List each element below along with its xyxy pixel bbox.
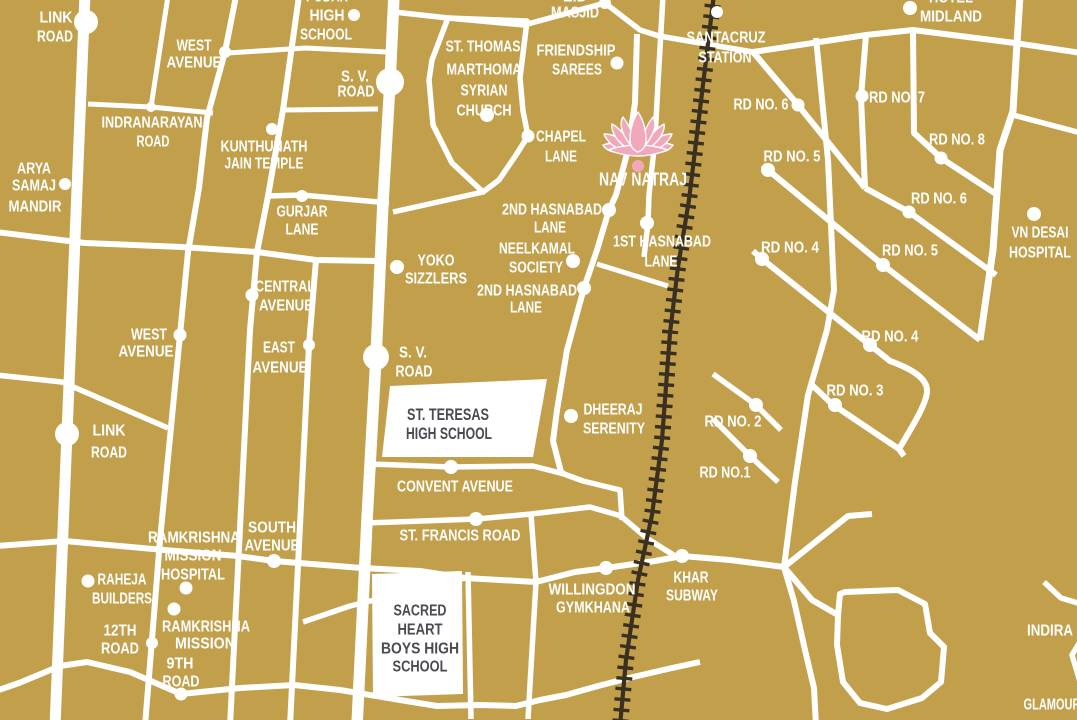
svg-text:BUILDERS: BUILDERS: [92, 590, 152, 607]
svg-text:AVENUE: AVENUE: [167, 54, 222, 71]
svg-text:2ND HASNABAD: 2ND HASNABAD: [477, 282, 577, 299]
svg-text:HIGH SCHOOL: HIGH SCHOOL: [406, 424, 492, 443]
svg-text:YOKO: YOKO: [418, 252, 455, 269]
svg-text:ST. TERESAS: ST. TERESAS: [407, 405, 489, 424]
svg-text:LANE: LANE: [545, 148, 577, 165]
svg-text:CHAPEL: CHAPEL: [536, 128, 586, 145]
svg-text:RD NO. 7: RD NO. 7: [869, 89, 925, 106]
svg-text:2ND HASNABAD: 2ND HASNABAD: [502, 201, 602, 218]
svg-text:SACRED: SACRED: [394, 603, 447, 620]
svg-text:RD NO. 5: RD NO. 5: [882, 242, 938, 259]
svg-text:RAMKRISHNA: RAMKRISHNA: [162, 618, 250, 635]
svg-text:HOSPITAL: HOSPITAL: [161, 566, 225, 583]
svg-text:RD NO. 4: RD NO. 4: [862, 328, 919, 345]
svg-text:AVENUE: AVENUE: [259, 297, 313, 314]
svg-text:AVENUE: AVENUE: [253, 359, 308, 376]
svg-text:JAIN TEMPLE: JAIN TEMPLE: [225, 155, 304, 172]
svg-text:CONVENT AVENUE: CONVENT AVENUE: [397, 478, 513, 495]
svg-text:INDIRA: INDIRA: [1027, 622, 1073, 639]
svg-text:MASJID: MASJID: [551, 4, 599, 21]
svg-text:WILLINGDON: WILLINGDON: [549, 581, 636, 598]
svg-text:LANE: LANE: [534, 219, 566, 236]
svg-text:SAREES: SAREES: [552, 61, 602, 78]
svg-text:KUNTHUNATH: KUNTHUNATH: [221, 138, 308, 155]
svg-text:SCHOOL: SCHOOL: [393, 659, 448, 676]
svg-text:NAV NATRAJ: NAV NATRAJ: [599, 169, 687, 190]
svg-text:9TH: 9TH: [167, 655, 194, 672]
svg-text:HOTEL: HOTEL: [929, 0, 973, 6]
svg-text:AVENUE: AVENUE: [245, 537, 300, 554]
svg-text:HIGH: HIGH: [310, 7, 345, 24]
svg-text:ROAD: ROAD: [396, 363, 433, 380]
svg-text:ROAD: ROAD: [338, 83, 375, 100]
svg-text:ST. FRANCIS ROAD: ST. FRANCIS ROAD: [400, 527, 521, 544]
svg-text:SUBWAY: SUBWAY: [666, 587, 719, 604]
svg-text:RD NO. 5: RD NO. 5: [764, 148, 821, 165]
svg-text:RD NO. 2: RD NO. 2: [705, 413, 762, 430]
svg-text:MIDLAND: MIDLAND: [920, 8, 982, 25]
svg-text:DHEERAJ: DHEERAJ: [584, 401, 643, 418]
svg-text:CENTRAL: CENTRAL: [255, 278, 315, 295]
svg-text:BOYS HIGH: BOYS HIGH: [381, 641, 459, 658]
svg-text:HOSPITAL: HOSPITAL: [1009, 244, 1071, 261]
svg-text:ROAD: ROAD: [163, 673, 200, 690]
svg-text:HEART: HEART: [398, 622, 443, 639]
svg-text:CHURCH: CHURCH: [457, 102, 512, 119]
svg-text:SYRIAN: SYRIAN: [461, 82, 508, 99]
svg-text:ROAD: ROAD: [91, 444, 127, 461]
svg-text:KHAR: KHAR: [674, 569, 709, 586]
svg-text:MANDIR: MANDIR: [9, 198, 62, 215]
svg-text:PODAR: PODAR: [306, 0, 348, 5]
svg-text:FRIENDSHIP: FRIENDSHIP: [537, 42, 616, 59]
svg-text:LANE: LANE: [286, 221, 319, 238]
svg-text:SOCIETY: SOCIETY: [509, 259, 564, 276]
svg-text:SANTACRUZ: SANTACRUZ: [687, 29, 766, 46]
svg-text:MARTHOMA: MARTHOMA: [447, 61, 522, 78]
svg-text:ROAD: ROAD: [101, 640, 139, 657]
svg-text:ROAD: ROAD: [37, 28, 73, 45]
svg-text:RD NO. 6: RD NO. 6: [734, 96, 789, 113]
svg-text:SERENITY: SERENITY: [583, 420, 646, 437]
svg-text:INDRANARAYAN: INDRANARAYAN: [102, 114, 203, 131]
svg-text:ARYA: ARYA: [17, 160, 51, 177]
svg-text:RD NO. 6: RD NO. 6: [911, 190, 967, 207]
svg-text:LANE: LANE: [645, 253, 678, 270]
svg-text:RD NO. 8: RD NO. 8: [929, 131, 985, 148]
svg-text:STATION: STATION: [699, 49, 752, 66]
svg-text:MISSION: MISSION: [175, 635, 235, 652]
svg-text:NEELKAMAL: NEELKAMAL: [499, 240, 575, 257]
svg-text:12TH: 12TH: [104, 622, 137, 639]
svg-text:MISSION: MISSION: [165, 547, 222, 564]
svg-text:GURJAR: GURJAR: [277, 203, 328, 220]
svg-text:SCHOOL: SCHOOL: [300, 26, 352, 43]
svg-text:VN DESAI: VN DESAI: [1012, 224, 1069, 241]
svg-text:LANE: LANE: [510, 299, 542, 316]
svg-text:GYMKHANA: GYMKHANA: [556, 599, 630, 616]
svg-text:SOUTH: SOUTH: [248, 519, 296, 536]
svg-text:WEST: WEST: [131, 326, 167, 343]
svg-text:LINK: LINK: [40, 9, 74, 26]
svg-text:S. V.: S. V.: [399, 344, 427, 361]
svg-text:EAST: EAST: [263, 339, 295, 356]
svg-text:SAMAJ: SAMAJ: [12, 177, 56, 194]
svg-text:LINK: LINK: [93, 422, 127, 439]
svg-text:WEST: WEST: [177, 37, 212, 54]
svg-text:SIZZLERS: SIZZLERS: [405, 270, 467, 287]
svg-text:GLAMOUR: GLAMOUR: [1024, 696, 1077, 713]
svg-text:RAMKRISHNA: RAMKRISHNA: [148, 529, 240, 546]
svg-text:RAHEJA: RAHEJA: [98, 571, 147, 588]
svg-text:ROAD: ROAD: [137, 133, 170, 150]
svg-text:ST. THOMAS: ST. THOMAS: [446, 38, 521, 55]
svg-text:RD NO. 3: RD NO. 3: [827, 382, 884, 399]
svg-text:AVENUE: AVENUE: [119, 343, 174, 360]
svg-text:RD NO.1: RD NO.1: [700, 464, 751, 481]
svg-text:RD NO. 4: RD NO. 4: [761, 239, 819, 256]
svg-text:1ST HASNABAD: 1ST HASNABAD: [613, 233, 711, 250]
